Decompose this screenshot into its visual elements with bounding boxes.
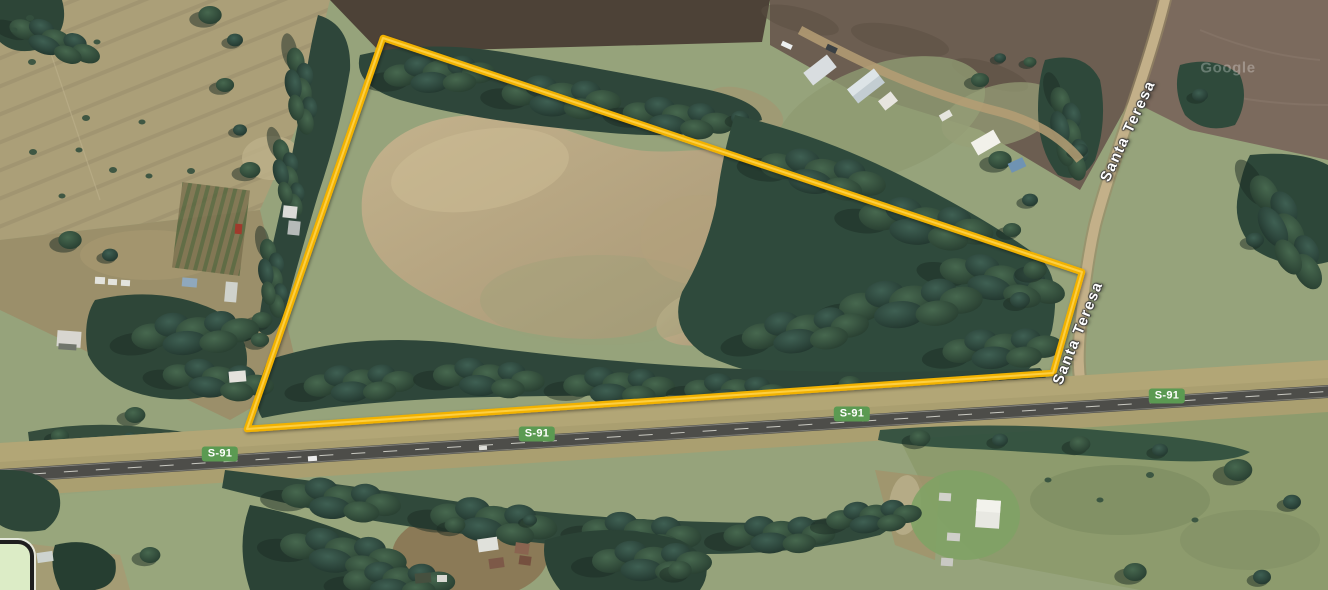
google-watermark: Google xyxy=(1200,60,1255,77)
route-badge-s91-mideast: S-91 xyxy=(834,406,870,421)
corner-overlay-card[interactable] xyxy=(0,540,34,590)
route-badge-s91-east: S-91 xyxy=(1149,388,1185,403)
route-badge-s91-midwest: S-91 xyxy=(519,426,555,441)
satellite-map-canvas[interactable]: S-91 S-91 S-91 S-91 Santa Teresa Santa T… xyxy=(0,0,1328,590)
satellite-imagery xyxy=(0,0,1328,590)
route-badge-s91-west: S-91 xyxy=(202,446,238,461)
